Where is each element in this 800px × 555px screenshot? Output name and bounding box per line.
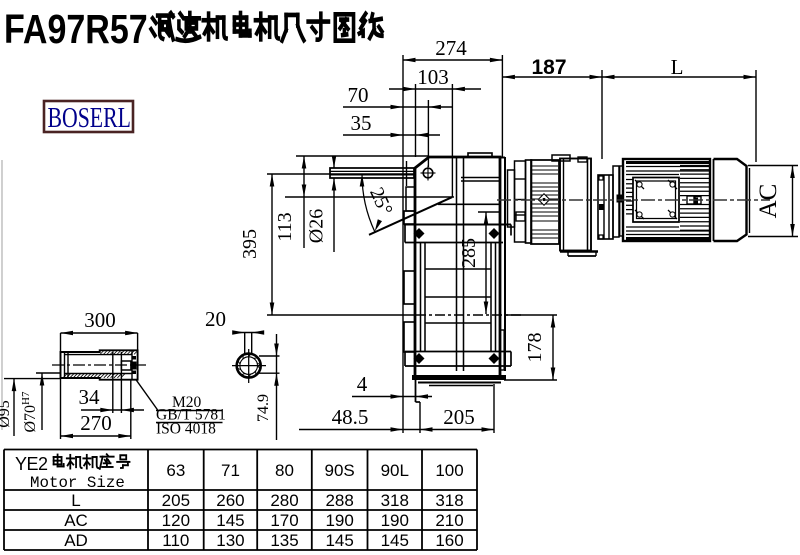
- svg-text:300: 300: [84, 308, 116, 332]
- svg-text:103: 103: [417, 65, 449, 89]
- svg-text:160: 160: [435, 531, 463, 550]
- svg-text:190: 190: [381, 511, 409, 530]
- svg-text:110: 110: [162, 531, 189, 550]
- svg-text:274: 274: [435, 36, 467, 60]
- svg-text:145: 145: [325, 531, 353, 550]
- svg-text:AC: AC: [64, 511, 88, 530]
- svg-text:FA97R57: FA97R57: [4, 6, 148, 52]
- svg-text:170: 170: [270, 511, 298, 530]
- svg-text:4: 4: [357, 372, 368, 396]
- svg-text:ISO 4018: ISO 4018: [156, 421, 216, 438]
- svg-text:74.9: 74.9: [255, 394, 272, 422]
- svg-text:190: 190: [325, 511, 353, 530]
- svg-text:145: 145: [216, 511, 244, 530]
- svg-text:25°: 25°: [365, 184, 397, 219]
- svg-text:135: 135: [270, 531, 298, 550]
- svg-text:187: 187: [531, 56, 566, 79]
- svg-text:Ø26: Ø26: [306, 209, 328, 243]
- svg-text:YE2: YE2: [15, 454, 48, 474]
- svg-text:Ø70H7: Ø70H7: [20, 391, 39, 433]
- svg-text:AD: AD: [64, 531, 88, 550]
- svg-text:48.5: 48.5: [332, 405, 369, 429]
- svg-text:318: 318: [435, 491, 463, 510]
- svg-text:AC: AC: [755, 184, 782, 219]
- svg-text:63: 63: [166, 461, 185, 480]
- svg-text:130: 130: [216, 531, 244, 550]
- svg-text:71: 71: [221, 461, 240, 480]
- svg-text:80: 80: [275, 461, 294, 480]
- svg-text:113: 113: [274, 212, 296, 241]
- svg-text:BOSERL: BOSERL: [48, 101, 131, 134]
- svg-text:205: 205: [162, 491, 190, 510]
- svg-text:35: 35: [351, 111, 372, 135]
- svg-text:260: 260: [216, 491, 244, 510]
- svg-text:70: 70: [348, 83, 369, 107]
- svg-text:34: 34: [79, 385, 101, 409]
- svg-text:90L: 90L: [381, 461, 409, 480]
- svg-text:288: 288: [325, 491, 353, 510]
- svg-text:100: 100: [435, 461, 463, 480]
- svg-text:205: 205: [443, 405, 475, 429]
- svg-text:318: 318: [381, 491, 409, 510]
- svg-text:395: 395: [239, 229, 261, 259]
- svg-text:178: 178: [524, 333, 546, 363]
- svg-text:Ø95: Ø95: [0, 400, 13, 428]
- svg-text:210: 210: [435, 511, 463, 530]
- svg-text:270: 270: [80, 411, 112, 435]
- svg-text:20: 20: [205, 307, 226, 331]
- svg-text:Motor Size: Motor Size: [30, 474, 125, 492]
- svg-text:285: 285: [458, 238, 480, 268]
- svg-text:90S: 90S: [325, 461, 355, 480]
- svg-text:L: L: [671, 55, 684, 79]
- svg-text:280: 280: [270, 491, 298, 510]
- svg-text:120: 120: [162, 511, 190, 530]
- svg-text:145: 145: [381, 531, 409, 550]
- svg-text:L: L: [71, 491, 80, 510]
